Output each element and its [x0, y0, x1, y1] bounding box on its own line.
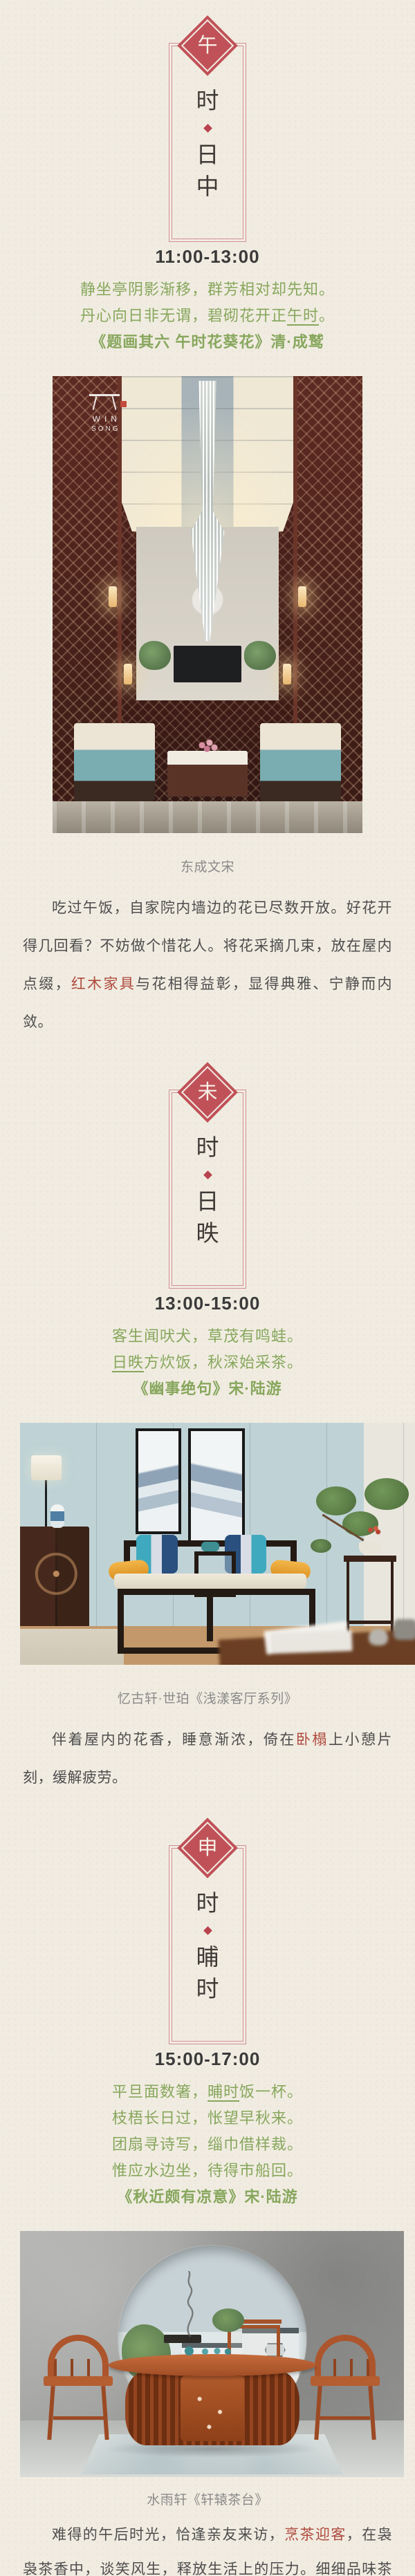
photo3-chair-stretcher — [319, 2416, 370, 2420]
poem-line: 静坐亭阴影渐移，群芳相对却先知。 — [0, 277, 415, 303]
winsong-seal-icon — [120, 401, 127, 407]
branch-badge-wrap: 午 — [0, 0, 415, 76]
photo1-tv — [174, 646, 242, 682]
photo2-bench-center-leg — [207, 1589, 213, 1641]
time-range-label: 11:00-13:00 — [0, 248, 415, 265]
photo3-chair-seat — [44, 2376, 113, 2386]
photo3-chair-leg — [368, 2386, 376, 2440]
photo1-plant — [244, 641, 276, 670]
poem-text: 方炊饭，秋深始采茶。 — [144, 1354, 303, 1371]
photo1-wall-lamp — [283, 664, 291, 684]
poem-line: 团扇寻诗写，缁巾借样裁。 — [0, 2131, 415, 2158]
branch-badge-wrap: 申 — [0, 1818, 415, 1878]
poem-text: 平旦面数箸， — [112, 2083, 207, 2100]
diamond-bullet-icon — [203, 1926, 212, 1935]
branch-character: 申 — [186, 1827, 229, 1869]
time-range-label: 13:00-15:00 — [0, 1294, 415, 1312]
poem-text: 惟应水边坐，待得市船回。 — [112, 2162, 303, 2179]
photo1-wall-lamp — [298, 586, 306, 607]
photo3-chair-leg — [101, 2386, 109, 2440]
photo2-bonsai-foliage — [316, 1486, 356, 1515]
photo1-coffee-table — [167, 751, 248, 796]
poem-text: 客生闻吠犬，草茂有鸣蛙。 — [112, 1327, 303, 1345]
poem-source: 《秋近颇有凉意》宋·陆游 — [0, 2184, 415, 2210]
photo1-sofa-left — [74, 723, 154, 801]
keyword-link[interactable]: 卧榻 — [296, 1732, 329, 1748]
photo3-tea-table-top — [109, 2354, 316, 2376]
poem-underlined-term: 晡时 — [207, 2083, 239, 2100]
photo2-bonsai-foliage — [365, 1478, 409, 1510]
period-char: 昳 — [196, 1222, 219, 1244]
branch-diamond-badge: 午 — [177, 15, 238, 76]
poem-text: 丹心向日非无谓，碧砌花开正 — [80, 307, 287, 324]
photo2-plant-stand-shelf — [347, 1621, 394, 1624]
poem-line: 平旦面数箸，晡时饭一杯。 — [0, 2079, 415, 2105]
poem-underlined-term: 日昳 — [112, 1354, 144, 1371]
photo2-plant-stand — [344, 1556, 396, 1562]
diamond-bullet-icon — [203, 1170, 212, 1179]
poem-underlined-term: 午时 — [287, 307, 319, 324]
photo3-tea-set — [183, 2344, 232, 2355]
body-paragraph: 吃过午饭，自家院内墙边的花已尽数开放。好花开得几回看？不妨做个惜花人。将花采摘几… — [23, 889, 392, 1041]
keyword-link[interactable]: 烹茶迎客 — [284, 2527, 347, 2543]
period-char: 中 — [196, 175, 219, 198]
body-paragraph: 伴着屋内的花香，睡意渐浓，倚在卧榻上小憩片刻，缓解疲劳。 — [23, 1721, 392, 1797]
living-room-photo[interactable]: WIN SONG — [53, 376, 362, 833]
period-char: 时 — [196, 1892, 219, 1914]
incense-smoke-icon — [175, 2271, 203, 2337]
photo3-tea-table-door — [181, 2376, 244, 2441]
branch-badge-wrap: 未 — [0, 1062, 415, 1123]
photo3-chair-stretcher — [53, 2416, 104, 2420]
branch-diamond-badge: 申 — [177, 1818, 238, 1878]
photo1-wall-lamp — [124, 664, 132, 684]
paragraph-text: 难得的午后时光，恰逢亲友来访， — [52, 2527, 284, 2543]
photo3-green-plant — [212, 2308, 244, 2332]
branch-character: 未 — [186, 1071, 229, 1114]
poem-text: 团扇寻诗写，缁巾借样裁。 — [112, 2136, 303, 2153]
watermark-text: SONG — [80, 425, 129, 433]
poem-source: 《题画其六 午时花葵花》清·成鹫 — [0, 329, 415, 355]
period-char: 时 — [196, 1977, 219, 2000]
photo2-floor-lamp-shade — [31, 1455, 62, 1480]
poem-source: 《幽事绝句》宋·陆游 — [0, 1376, 415, 1402]
period-char: 时 — [196, 1136, 219, 1159]
keyword-link[interactable]: 红木家具 — [71, 976, 136, 992]
photo2-teacup — [369, 1629, 388, 1645]
poem-line: 枝梧长日过，怅望早秋来。 — [0, 2105, 415, 2131]
photo-caption: 忆古轩·世珀《浅漾客厅系列》 — [0, 1692, 415, 1706]
watermark-text: WIN — [80, 414, 129, 424]
period-char: 日 — [196, 1190, 219, 1213]
diamond-bullet-icon — [203, 124, 212, 133]
photo1-flowers — [195, 738, 220, 756]
photo3-chair-seat — [311, 2376, 380, 2386]
poem-text: 静坐亭阴影渐移，群芳相对却先知。 — [80, 281, 335, 298]
poem-block: 静坐亭阴影渐移，群芳相对却先知。 丹心向日非无谓，碧砌花开正午时。 《题画其六 … — [0, 277, 415, 355]
photo1-sofa-right — [260, 723, 340, 801]
lounge-bench-photo[interactable] — [20, 1423, 415, 1665]
poem-text: 。 — [319, 307, 335, 324]
photo1-wall-lamp — [109, 586, 117, 607]
photo2-wood-cabinet — [20, 1527, 89, 1632]
branch-character: 午 — [186, 24, 229, 67]
branch-diamond-badge: 未 — [177, 1062, 238, 1123]
table-icon — [89, 394, 120, 411]
paragraph-text: 伴着屋内的花香，睡意渐浓，倚在 — [52, 1732, 296, 1748]
photo-caption: 东成文宋 — [0, 861, 415, 874]
photo2-porcelain-vase — [50, 1504, 64, 1528]
photo3-armchair-left — [44, 2335, 113, 2452]
photo2-bonsai-foliage — [311, 1539, 331, 1553]
photo1-marble-floor — [53, 801, 362, 833]
photo1-plant — [139, 641, 171, 670]
body-paragraph: 难得的午后时光，恰逢亲友来访，烹茶迎客，在袅袅茶香中，谈笑风生，释放生活上的压力… — [23, 2518, 392, 2576]
time-range-label: 15:00-17:00 — [0, 2050, 415, 2068]
poem-line: 客生闻吠犬，草茂有鸣蛙。 — [0, 1323, 415, 1350]
photo2-red-flower — [366, 1525, 381, 1535]
poem-block: 客生闻吠犬，草茂有鸣蛙。 日昳方炊饭，秋深始采茶。 《幽事绝句》宋·陆游 — [0, 1323, 415, 1402]
photo2-seat-cushion — [114, 1574, 306, 1589]
poem-text: 枝梧长日过，怅望早秋来。 — [112, 2109, 303, 2127]
section-shen-shi: 申 时 晡 时 15:00-17:00 平旦面数箸，晡时饭一杯。 枝梧长日过，怅… — [0, 1818, 415, 2576]
winsong-watermark: WIN SONG — [80, 394, 129, 433]
period-char: 晡 — [196, 1945, 219, 1968]
photo2-blurred-foreground — [219, 1625, 415, 1665]
photo3-chair-leg — [314, 2386, 322, 2440]
photo2-ink-painting-right — [188, 1428, 245, 1543]
photo2-teapot — [201, 1542, 219, 1551]
poem-line: 日昳方炊饭，秋深始采茶。 — [0, 1350, 415, 1376]
poem-line: 惟应水边坐，待得市船回。 — [0, 2158, 415, 2184]
photo3-armchair-right — [311, 2335, 380, 2452]
photo3-chair-leg — [47, 2386, 55, 2440]
photo2-kettle — [394, 1619, 415, 1640]
photo2-bonsai-pot — [359, 1542, 382, 1554]
photo2-rug — [20, 1629, 124, 1665]
photo2-magazine — [270, 1630, 353, 1654]
article-page: 午 时 日 中 11:00-13:00 静坐亭阴影渐移，群芳相对却先知。 丹心向… — [0, 0, 415, 2576]
period-char: 时 — [196, 89, 219, 112]
moon-gate-tea-table-photo[interactable] — [20, 2231, 404, 2477]
section-wu-shi: 午 时 日 中 11:00-13:00 静坐亭阴影渐移，群芳相对却先知。 丹心向… — [0, 0, 415, 1041]
section-wei-shi: 未 时 日 昳 13:00-15:00 客生闻吠犬，草茂有鸣蛙。 日昳方炊饭，秋… — [0, 1062, 415, 1797]
poem-block: 平旦面数箸，晡时饭一杯。 枝梧长日过，怅望早秋来。 团扇寻诗写，缁巾借样裁。 惟… — [0, 2079, 415, 2210]
poem-line: 丹心向日非无谓，碧砌花开正午时。 — [0, 303, 415, 329]
photo2-ink-painting-left — [136, 1428, 181, 1534]
photo-caption: 水雨轩《轩辕茶台》 — [0, 2494, 415, 2507]
period-char: 日 — [196, 143, 219, 166]
poem-text: 饭一杯。 — [239, 2083, 303, 2100]
